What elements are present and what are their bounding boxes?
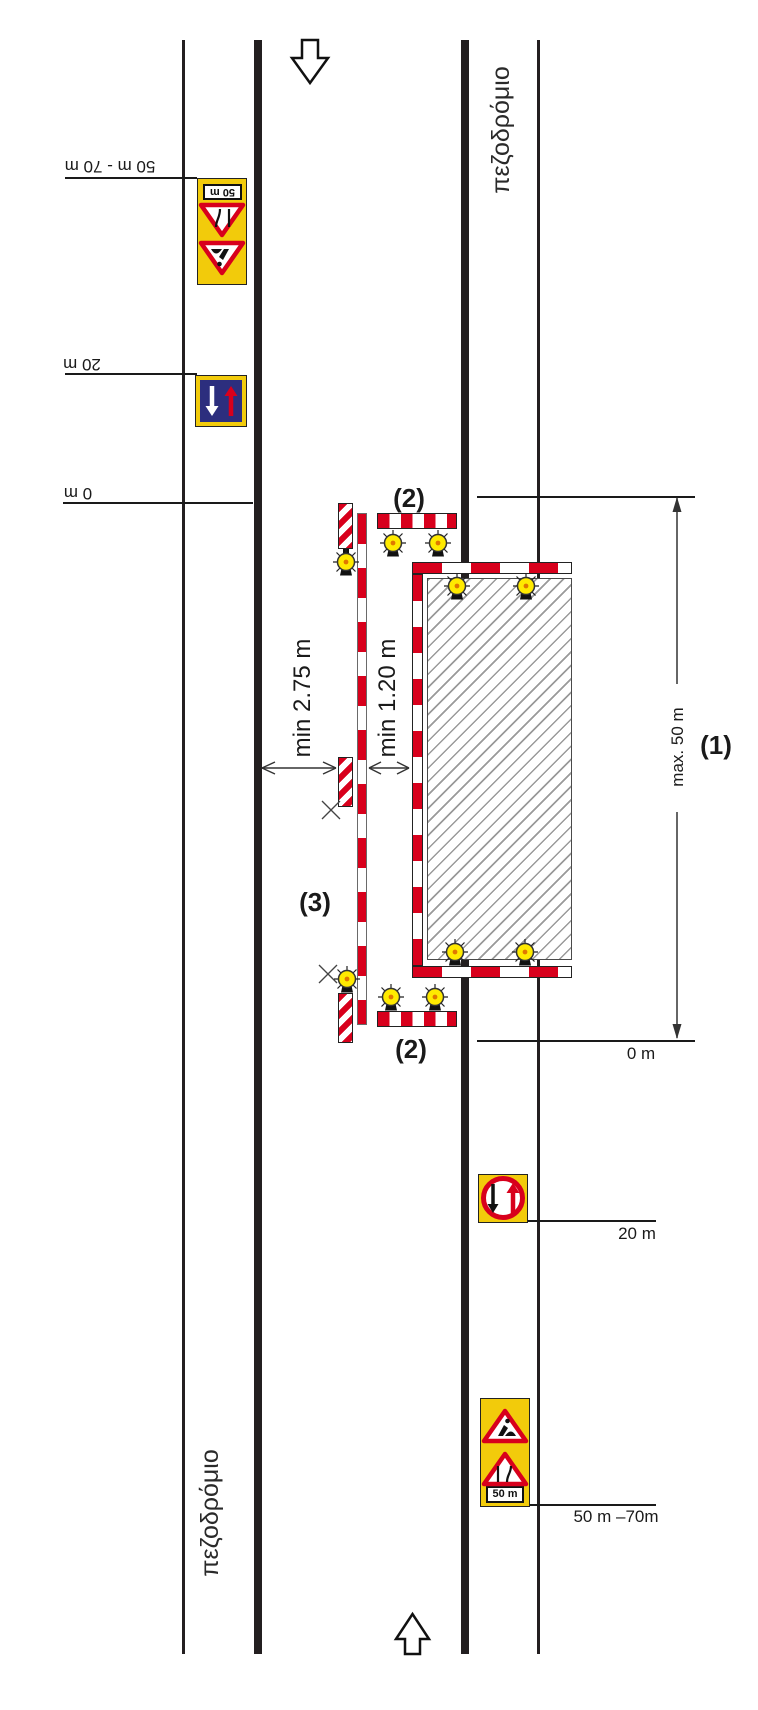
priority-sign-blue-face [200, 380, 242, 422]
callout-3: (3) [295, 887, 335, 918]
sidewalk-boundary-line-left [182, 40, 185, 1654]
distance-line-bottom-20 [527, 1220, 656, 1222]
dimension-label-max-zone: max. 50 m [666, 697, 690, 797]
distance-plate-top: 50 m [203, 184, 242, 200]
distance-label-top-20: 20 m [52, 354, 112, 374]
striped-edge-panel-middle [338, 757, 353, 807]
distance-line-bottom-0 [477, 1040, 695, 1042]
striped-edge-panel-top [338, 503, 353, 549]
dimension-label-min-lane: min 2.75 m [288, 623, 318, 773]
distance-line-top-50-70 [65, 177, 197, 179]
no-priority-sign-bottom [478, 1174, 528, 1223]
traffic-direction-arrow-down [292, 40, 328, 83]
road-edge-line-left [254, 40, 262, 1654]
dimension-label-min-offset: min 1.20 m [373, 623, 403, 773]
distance-label-bottom-20: 20 m [607, 1224, 667, 1244]
diagram-overlay [0, 0, 758, 1710]
distance-label-top-0: 0 m [55, 483, 101, 503]
workzone-barrier-left [412, 574, 423, 966]
callout-1: (1) [696, 730, 736, 761]
longitudinal-delineator-line [357, 513, 367, 1025]
distance-label-bottom-0: 0 m [618, 1044, 664, 1064]
dimension-arrowhead-down [673, 1024, 682, 1039]
traffic-works-layout-diagram: 50 m 50 m πεζοδρόμιο πεζοδρόμιο 50 m - 7… [0, 0, 758, 1710]
distance-label-top-50-70: 50 m - 70 m [55, 156, 165, 176]
warning-lamp-icon [422, 984, 448, 1011]
callout-2-bottom: (2) [391, 1034, 431, 1065]
distance-plate-bottom: 50 m [486, 1486, 524, 1503]
distance-line-bottom-50-70 [530, 1504, 656, 1506]
transverse-barrier-top [377, 513, 457, 529]
sidewalk-label-left: πεζοδρόμιο [195, 1438, 225, 1588]
tick-mark-bottom-panel [319, 965, 337, 983]
distance-label-bottom-50-70: 50 m –70m [566, 1507, 666, 1527]
workzone-barrier-bottom [412, 966, 572, 978]
warning-lamp-icon [378, 984, 404, 1011]
striped-edge-panel-bottom [338, 993, 353, 1043]
panel-mount-nub-top [343, 549, 349, 554]
workzone-barrier-top [412, 562, 572, 574]
work-area-hatched [427, 578, 572, 960]
sidewalk-label-right: πεζοδρόμιο [486, 55, 516, 205]
warning-lamp-icon [425, 530, 451, 557]
callout-2-top: (2) [389, 483, 429, 514]
transverse-barrier-bottom [377, 1011, 457, 1027]
workzone-start-tick-line [477, 496, 695, 498]
warning-lamp-icon [380, 530, 406, 557]
dimension-arrowhead-up [673, 497, 682, 512]
traffic-direction-arrow-up [396, 1614, 429, 1654]
